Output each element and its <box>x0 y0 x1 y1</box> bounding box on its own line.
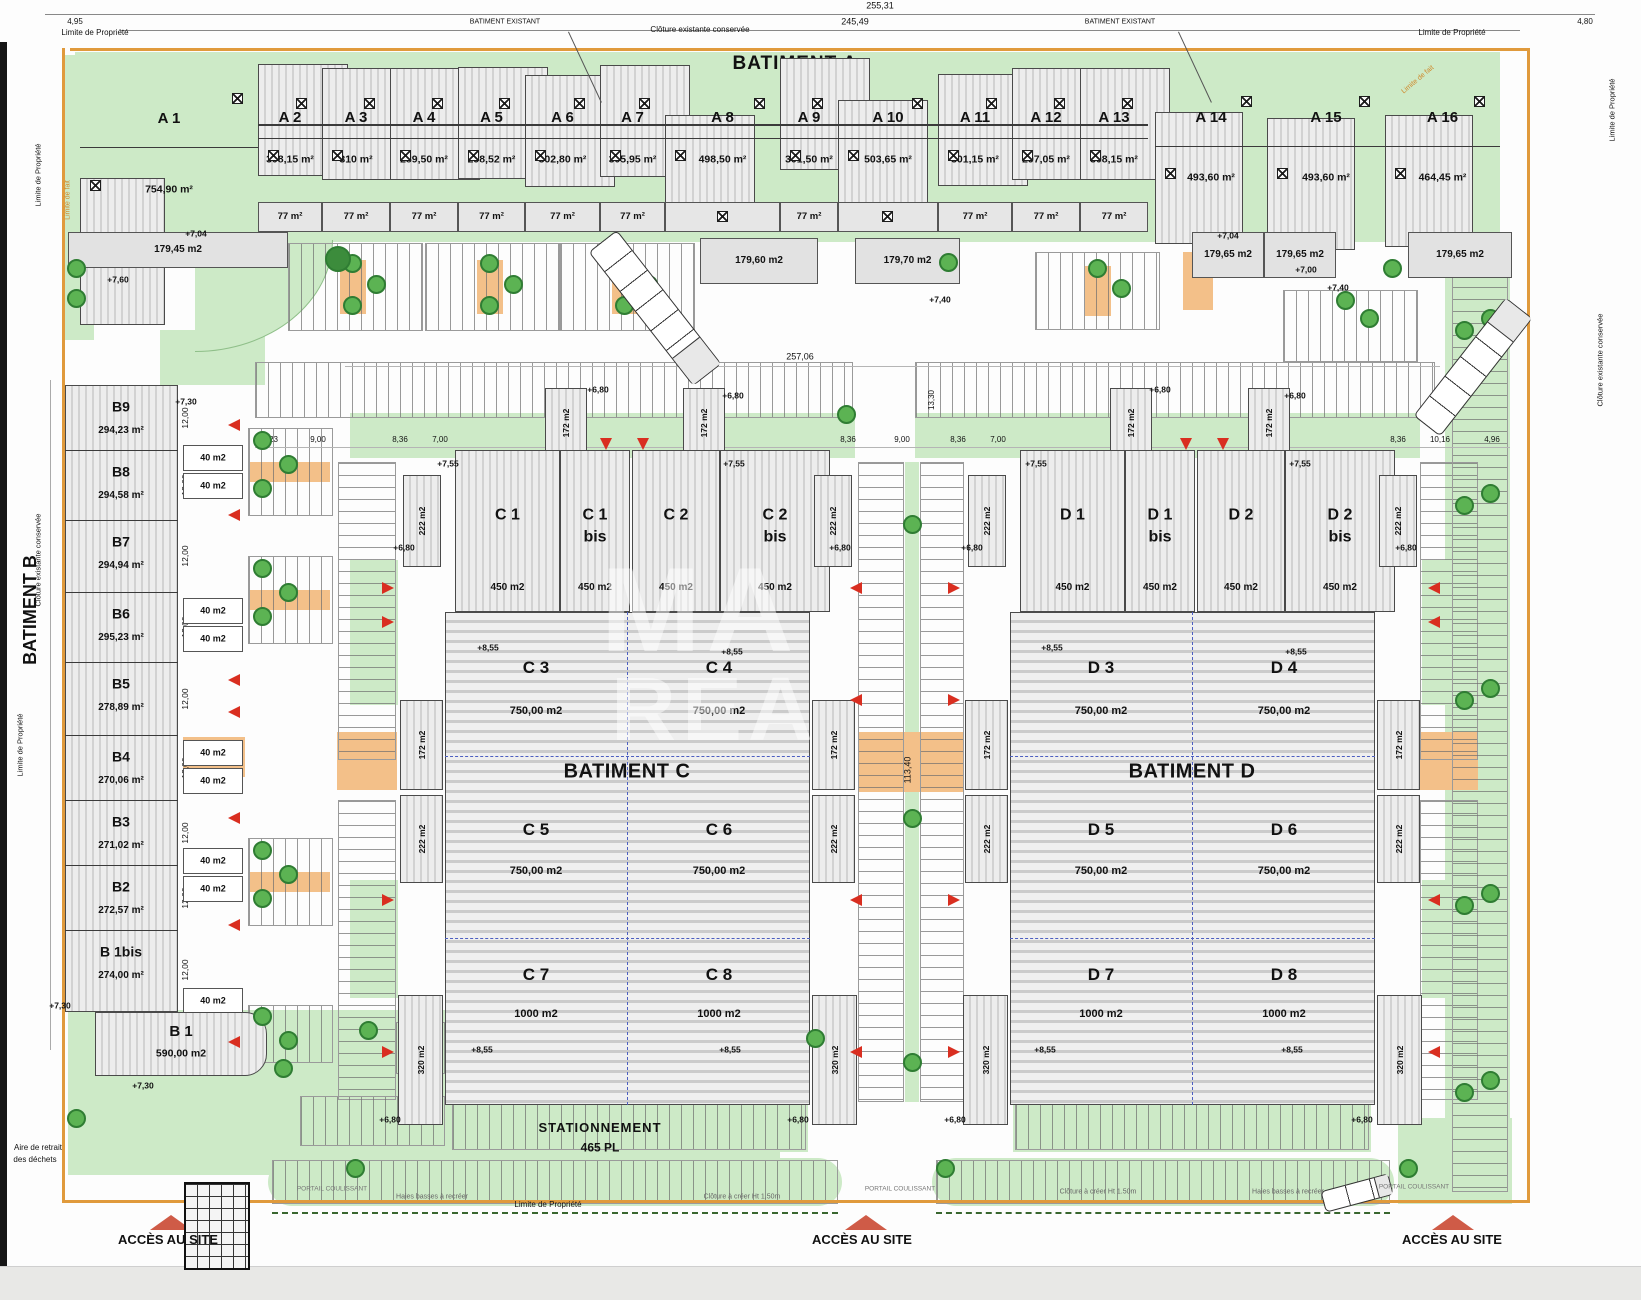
dimension-label: 113,40 <box>904 757 913 784</box>
boundary-label: Limite de Propriété <box>1608 79 1616 142</box>
blue-axis <box>1010 938 1375 939</box>
tree-icon <box>1383 259 1402 278</box>
level-marker: +6,80 <box>1395 544 1417 553</box>
level-marker: +8,55 <box>1281 1046 1303 1055</box>
unit-area: 590,00 m2 <box>156 1048 206 1059</box>
red-arrow-icon <box>1428 616 1440 628</box>
page-bottom-band <box>0 1266 1641 1300</box>
unit-label: D 5 <box>1088 821 1114 839</box>
level-marker: +6,80 <box>1284 392 1306 401</box>
waste-area-label: des déchets <box>13 1156 56 1164</box>
unit-area: 77 m² <box>412 212 437 222</box>
unit-area: 450 m2 <box>1056 583 1090 594</box>
divider <box>1267 146 1385 147</box>
annex-area: 222 m2 <box>829 825 838 854</box>
red-arrow-icon <box>948 894 960 906</box>
unit-label: B4 <box>112 750 130 765</box>
skylight-icon <box>882 211 893 222</box>
unit-area: 40 m2 <box>200 748 226 757</box>
annex-area: 222 m2 <box>1394 507 1403 536</box>
parking-count: 465 PL <box>581 1142 620 1155</box>
site-access-label: ACCÈS AU SITE <box>118 1233 218 1247</box>
unit-label: B2 <box>112 880 130 895</box>
red-arrow-icon <box>228 509 240 521</box>
level-marker: +6,80 <box>944 1116 966 1125</box>
unit-area: 503,65 m² <box>864 154 912 165</box>
unit-area: 493,60 m² <box>1187 172 1235 183</box>
hedge-label: Haies basses à recréer <box>396 1193 468 1200</box>
red-arrow-icon <box>228 919 240 931</box>
tree-icon <box>67 289 86 308</box>
level-marker: +6,80 <box>1351 1116 1373 1125</box>
level-marker: +6,80 <box>829 544 851 553</box>
gate-label: PORTAIL COULISSANT <box>1379 1185 1449 1192</box>
unit-area: 294,94 m² <box>98 561 144 572</box>
divider <box>1385 146 1500 147</box>
access-gate-icon <box>1432 1215 1474 1230</box>
unit-label: C 8 <box>706 966 732 984</box>
dimension-label: 12,00 <box>181 407 190 428</box>
unit-label: B8 <box>112 465 130 480</box>
red-arrow-icon <box>228 674 240 686</box>
tree-icon <box>253 1007 272 1026</box>
divider <box>525 138 600 139</box>
divider <box>65 865 178 866</box>
unit-label: C 3 <box>523 659 549 677</box>
waste-area <box>184 1182 250 1270</box>
annex-area: 172 m2 <box>1394 731 1403 760</box>
boundary-label: Limite de Propriété <box>34 144 42 207</box>
unit-area: 498,50 m² <box>699 154 747 165</box>
red-arrow-icon <box>1180 438 1192 450</box>
unit-label: B3 <box>112 815 130 830</box>
tree-icon <box>1360 309 1379 328</box>
red-arrow-icon <box>228 1036 240 1048</box>
unit-label: D 8 <box>1271 966 1297 984</box>
red-arrow-icon <box>850 582 862 594</box>
tree-icon <box>279 583 298 602</box>
red-arrow-icon <box>1428 1046 1440 1058</box>
annex-area: 320 m2 <box>416 1046 425 1075</box>
tree-icon <box>1112 279 1131 298</box>
dimension-line <box>255 447 1510 448</box>
unit-area: 750,00 m2 <box>1075 866 1128 878</box>
unit-area: 450 m2 <box>491 583 525 594</box>
annex-area: 179,65 m2 <box>1204 250 1252 261</box>
unit-label: D 6 <box>1271 821 1297 839</box>
tree-icon <box>1481 679 1500 698</box>
unit-area: 271,02 m² <box>98 841 144 852</box>
level-marker: +7,00 <box>1295 266 1317 275</box>
annex-area: 179,65 m2 <box>1276 250 1324 261</box>
divider <box>65 800 178 801</box>
divider <box>65 930 178 931</box>
dimension-label: 9,00 <box>310 436 326 444</box>
skylight-icon <box>1054 98 1065 109</box>
building-b1 <box>95 1012 267 1076</box>
unit-area: 750,00 m2 <box>510 866 563 878</box>
unit-area: 77 m² <box>1102 212 1127 222</box>
divider <box>65 592 178 593</box>
parking-stalls <box>915 362 1435 418</box>
divider <box>780 138 838 139</box>
unit-label: C 7 <box>523 966 549 984</box>
hedge-line <box>272 1212 838 1214</box>
callout-label: BATIMENT EXISTANT <box>470 18 540 25</box>
level-marker: +8,55 <box>719 1046 741 1055</box>
skylight-icon <box>1165 168 1176 179</box>
blue-axis <box>1010 756 1375 757</box>
dimension-label: 4,95 <box>67 18 83 26</box>
site-access-label: ACCÈS AU SITE <box>1402 1233 1502 1247</box>
divider <box>1080 138 1148 139</box>
skylight-icon <box>400 150 411 161</box>
unit-area: 278,89 m² <box>98 703 144 714</box>
fence-label: Clôture à créer Ht 1.50m <box>704 1193 781 1200</box>
tree-icon <box>279 1031 298 1050</box>
unit-area: 1000 m2 <box>1262 1009 1305 1021</box>
unit-label: B5 <box>112 677 130 692</box>
watermark: MA <box>601 547 800 673</box>
tree-icon <box>480 296 499 315</box>
tree-icon <box>1088 259 1107 278</box>
red-arrow-icon <box>228 812 240 824</box>
divider <box>1012 138 1080 139</box>
tree-icon <box>325 246 351 272</box>
structural-line <box>258 124 1148 126</box>
unit-area: 77 m² <box>278 212 303 222</box>
red-arrow-icon <box>850 694 862 706</box>
unit-area: 294,23 m² <box>98 426 144 437</box>
tree-icon <box>837 405 856 424</box>
parking-stalls <box>920 462 964 1102</box>
dimension-label: 12,00 <box>181 822 190 843</box>
red-arrow-icon <box>948 694 960 706</box>
red-arrow-icon <box>1217 438 1229 450</box>
unit-label: D 1 <box>1060 508 1085 525</box>
boundary-line <box>62 1200 1530 1203</box>
tree-icon <box>1481 1071 1500 1090</box>
unit-label: A 16 <box>1427 110 1458 126</box>
level-marker: +7,04 <box>185 230 207 239</box>
gate-label: PORTAIL COULISSANT <box>297 1187 367 1194</box>
annex-area: 179,45 m2 <box>154 245 202 256</box>
level-marker: +6,80 <box>961 544 983 553</box>
unit-area: 270,06 m² <box>98 776 144 787</box>
skylight-icon <box>535 150 546 161</box>
level-marker: +6,80 <box>722 392 744 401</box>
boundary-line <box>1527 48 1530 1203</box>
divider <box>65 450 178 451</box>
unit-area: 1000 m2 <box>1079 1009 1122 1021</box>
divider <box>65 662 178 663</box>
divider <box>458 138 525 139</box>
boundary-label: Limite de fait <box>65 180 72 220</box>
unit-area: 1000 m2 <box>514 1009 557 1021</box>
tree-icon <box>343 296 362 315</box>
tree-icon <box>1336 291 1355 310</box>
red-arrow-icon <box>382 582 394 594</box>
level-marker: +7,40 <box>929 296 951 305</box>
level-marker: +6,80 <box>1149 386 1171 395</box>
divider <box>390 138 458 139</box>
tree-icon <box>359 1021 378 1040</box>
level-marker: +7,55 <box>1289 460 1311 469</box>
tree-icon <box>480 254 499 273</box>
skylight-icon <box>812 98 823 109</box>
unit-area: 77 m² <box>620 212 645 222</box>
unit-area: 750,00 m2 <box>1075 706 1128 718</box>
tree-icon <box>1455 496 1474 515</box>
annex-area: 172 m2 <box>417 731 426 760</box>
divider <box>938 138 1012 139</box>
skylight-icon <box>1090 150 1101 161</box>
tree-icon <box>346 1159 365 1178</box>
blue-axis <box>445 938 810 939</box>
unit-label: D 3 <box>1088 659 1114 677</box>
dimension-label: 7,00 <box>432 436 448 444</box>
skylight-icon <box>499 98 510 109</box>
boundary-label: Clôture existante conservée <box>34 514 42 607</box>
unit-label: C 2 <box>664 508 689 525</box>
dimension-label: 12,00 <box>181 688 190 709</box>
skylight-icon <box>1122 98 1133 109</box>
unit-area: 750,00 m2 <box>1258 866 1311 878</box>
unit-area: 40 m2 <box>200 996 226 1005</box>
dimension-label: 13,30 <box>928 390 936 410</box>
callout-label: BATIMENT EXISTANT <box>1085 18 1155 25</box>
level-marker: +6,80 <box>787 1116 809 1125</box>
page-edge-bar <box>0 42 7 1300</box>
dimension-line <box>120 30 1520 31</box>
skylight-icon <box>1277 168 1288 179</box>
tree-icon <box>1455 896 1474 915</box>
unit-area: 77 m² <box>344 212 369 222</box>
divider <box>65 520 178 521</box>
tree-icon <box>806 1029 825 1048</box>
dimension-line <box>50 380 51 1050</box>
tree-icon <box>903 1053 922 1072</box>
level-marker: +6,80 <box>393 544 415 553</box>
boundary-label: Clôture existante conservée <box>650 26 749 34</box>
unit-label: D 2 <box>1229 508 1254 525</box>
tree-icon <box>253 431 272 450</box>
boundary-label: Limite de Propriété <box>16 714 24 777</box>
dimension-label: 12,00 <box>181 545 190 566</box>
boundary-line <box>70 48 1528 51</box>
red-arrow-icon <box>228 419 240 431</box>
level-marker: +7,55 <box>723 460 745 469</box>
tree-icon <box>936 1159 955 1178</box>
red-arrow-icon <box>637 438 649 450</box>
site-plan: 255,31245,494,954,80257,06113,4013,3027,… <box>0 0 1641 1300</box>
tree-icon <box>367 275 386 294</box>
unit-area: 464,45 m² <box>1419 172 1467 183</box>
red-arrow-icon <box>382 616 394 628</box>
unit-label: B6 <box>112 607 130 622</box>
annex-area: 172 m2 <box>1127 409 1136 438</box>
unit-label: C 6 <box>706 821 732 839</box>
annex-area: 172 m2 <box>1265 409 1274 438</box>
unit-label: bis <box>1328 530 1351 547</box>
unit-label: D 2 <box>1328 508 1353 525</box>
unit-label: D 4 <box>1271 659 1297 677</box>
level-marker: +8,55 <box>1285 648 1307 657</box>
tree-icon <box>67 259 86 278</box>
dimension-label: 4,80 <box>1577 18 1593 26</box>
skylight-icon <box>610 150 621 161</box>
dimension-label: 8,36 <box>840 436 856 444</box>
dimension-label: 12,00 <box>181 959 190 980</box>
red-arrow-icon <box>1428 582 1440 594</box>
level-marker: +7,60 <box>107 276 129 285</box>
unit-area: 1000 m2 <box>697 1009 740 1021</box>
tree-icon <box>253 559 272 578</box>
red-arrow-icon <box>850 1046 862 1058</box>
unit-area: 40 m2 <box>200 453 226 462</box>
dimension-label: 8,36 <box>1390 436 1406 444</box>
parking-stalls <box>338 462 396 760</box>
unit-area: 750,00 m2 <box>510 706 563 718</box>
level-marker: +8,55 <box>477 644 499 653</box>
dimension-label: 255,31 <box>866 1 894 10</box>
dimension-label: 8,36 <box>392 436 408 444</box>
annex-area: 320 m2 <box>1395 1046 1404 1075</box>
dimension-label: 257,06 <box>786 352 814 361</box>
divider <box>258 138 322 139</box>
unit-label: C 1 <box>583 508 608 525</box>
unit-area: 272,57 m² <box>98 906 144 917</box>
skylight-icon <box>986 98 997 109</box>
blue-axis <box>1192 612 1193 1105</box>
dimension-label: 9,00 <box>894 436 910 444</box>
divider <box>838 138 938 139</box>
level-marker: +7,55 <box>437 460 459 469</box>
unit-label: B9 <box>112 400 130 415</box>
tree-icon <box>1399 1159 1418 1178</box>
level-marker: +7,30 <box>132 1082 154 1091</box>
dimension-label: 10,16 <box>1430 436 1450 444</box>
unit-label: B 1bis <box>100 945 142 960</box>
tree-icon <box>279 455 298 474</box>
skylight-icon <box>790 150 801 161</box>
site-access-label: ACCÈS AU SITE <box>812 1233 912 1247</box>
unit-area: 450 m2 <box>1323 583 1357 594</box>
skylight-icon <box>232 93 243 104</box>
dimension-label: 8,36 <box>950 436 966 444</box>
unit-area: 40 m2 <box>200 776 226 785</box>
level-marker: +6,80 <box>379 1116 401 1125</box>
skylight-icon <box>675 150 686 161</box>
skylight-icon <box>912 98 923 109</box>
dimension-label: 4,96 <box>1484 436 1500 444</box>
tree-icon <box>253 841 272 860</box>
skylight-icon <box>754 98 765 109</box>
tree-icon <box>253 607 272 626</box>
unit-area: 754,90 m² <box>145 184 193 195</box>
unit-label: B 1 <box>169 1024 192 1040</box>
skylight-icon <box>948 150 959 161</box>
unit-area: 274,00 m² <box>98 971 144 982</box>
annex-area: 222 m2 <box>1394 825 1403 854</box>
boundary-label: Clôture existante conservée <box>1596 314 1604 407</box>
unit-area: 77 m² <box>1034 212 1059 222</box>
tree-icon <box>1481 884 1500 903</box>
building-a-unit <box>1267 118 1355 250</box>
tree-icon <box>279 865 298 884</box>
fence-label: Clôture à créer Ht 1.50m <box>1060 1188 1137 1195</box>
access-gate-icon <box>845 1215 887 1230</box>
skylight-icon <box>848 150 859 161</box>
divider <box>65 735 178 736</box>
hedge-label: Haies basses à recréer <box>1252 1188 1324 1195</box>
annex-area: 222 m2 <box>982 825 991 854</box>
tree-icon <box>903 809 922 828</box>
annex-area: 320 m2 <box>981 1046 990 1075</box>
skylight-icon <box>364 98 375 109</box>
unit-area: 750,00 m2 <box>693 866 746 878</box>
unit-label: D 1 <box>1148 508 1173 525</box>
level-marker: +7,55 <box>1025 460 1047 469</box>
skylight-icon <box>1241 96 1252 107</box>
skylight-icon <box>468 150 479 161</box>
unit-area: 40 m2 <box>200 856 226 865</box>
unit-area: 77 m² <box>963 212 988 222</box>
skylight-icon <box>1395 168 1406 179</box>
annex-area: 172 m2 <box>829 731 838 760</box>
skylight-icon <box>296 98 307 109</box>
divider <box>665 138 780 139</box>
unit-label: A 1 <box>158 111 181 127</box>
unit-area: 77 m² <box>797 212 822 222</box>
annex-area: 179,60 m2 <box>735 256 783 267</box>
skylight-icon <box>639 98 650 109</box>
boundary-label: Limite de Propriété <box>514 1201 581 1209</box>
skylight-icon <box>1359 96 1370 107</box>
level-marker: +7,30 <box>49 1002 71 1011</box>
unit-area: 294,58 m² <box>98 491 144 502</box>
hedge-line <box>936 1212 1390 1214</box>
unit-area: 40 m2 <box>200 606 226 615</box>
red-arrow-icon <box>382 894 394 906</box>
unit-area: 750,00 m2 <box>1258 706 1311 718</box>
divider <box>1155 146 1267 147</box>
annex-area: 222 m2 <box>829 507 838 536</box>
skylight-icon <box>90 180 101 191</box>
unit-label: A 15 <box>1310 110 1341 126</box>
skylight-icon <box>268 150 279 161</box>
unit-area: 310 m² <box>339 154 372 165</box>
skylight-icon <box>717 211 728 222</box>
waste-area-label: Aire de retrait <box>14 1144 62 1152</box>
tree-icon <box>67 1109 86 1128</box>
unit-label: C 1 <box>495 508 520 525</box>
parking-title: STATIONNEMENT <box>538 1121 661 1135</box>
unit-area: 40 m2 <box>200 884 226 893</box>
red-arrow-icon <box>600 438 612 450</box>
tree-icon <box>253 479 272 498</box>
unit-label: C 2 <box>763 508 788 525</box>
skylight-icon <box>432 98 443 109</box>
dimension-label: 7,00 <box>990 436 1006 444</box>
red-arrow-icon <box>1428 894 1440 906</box>
parking-stalls <box>858 462 904 1102</box>
red-arrow-icon <box>948 1046 960 1058</box>
level-marker: +8,55 <box>1041 644 1063 653</box>
level-marker: +6,80 <box>587 386 609 395</box>
gate-label: PORTAIL COULISSANT <box>865 1187 935 1194</box>
annex-area: 320 m2 <box>830 1046 839 1075</box>
